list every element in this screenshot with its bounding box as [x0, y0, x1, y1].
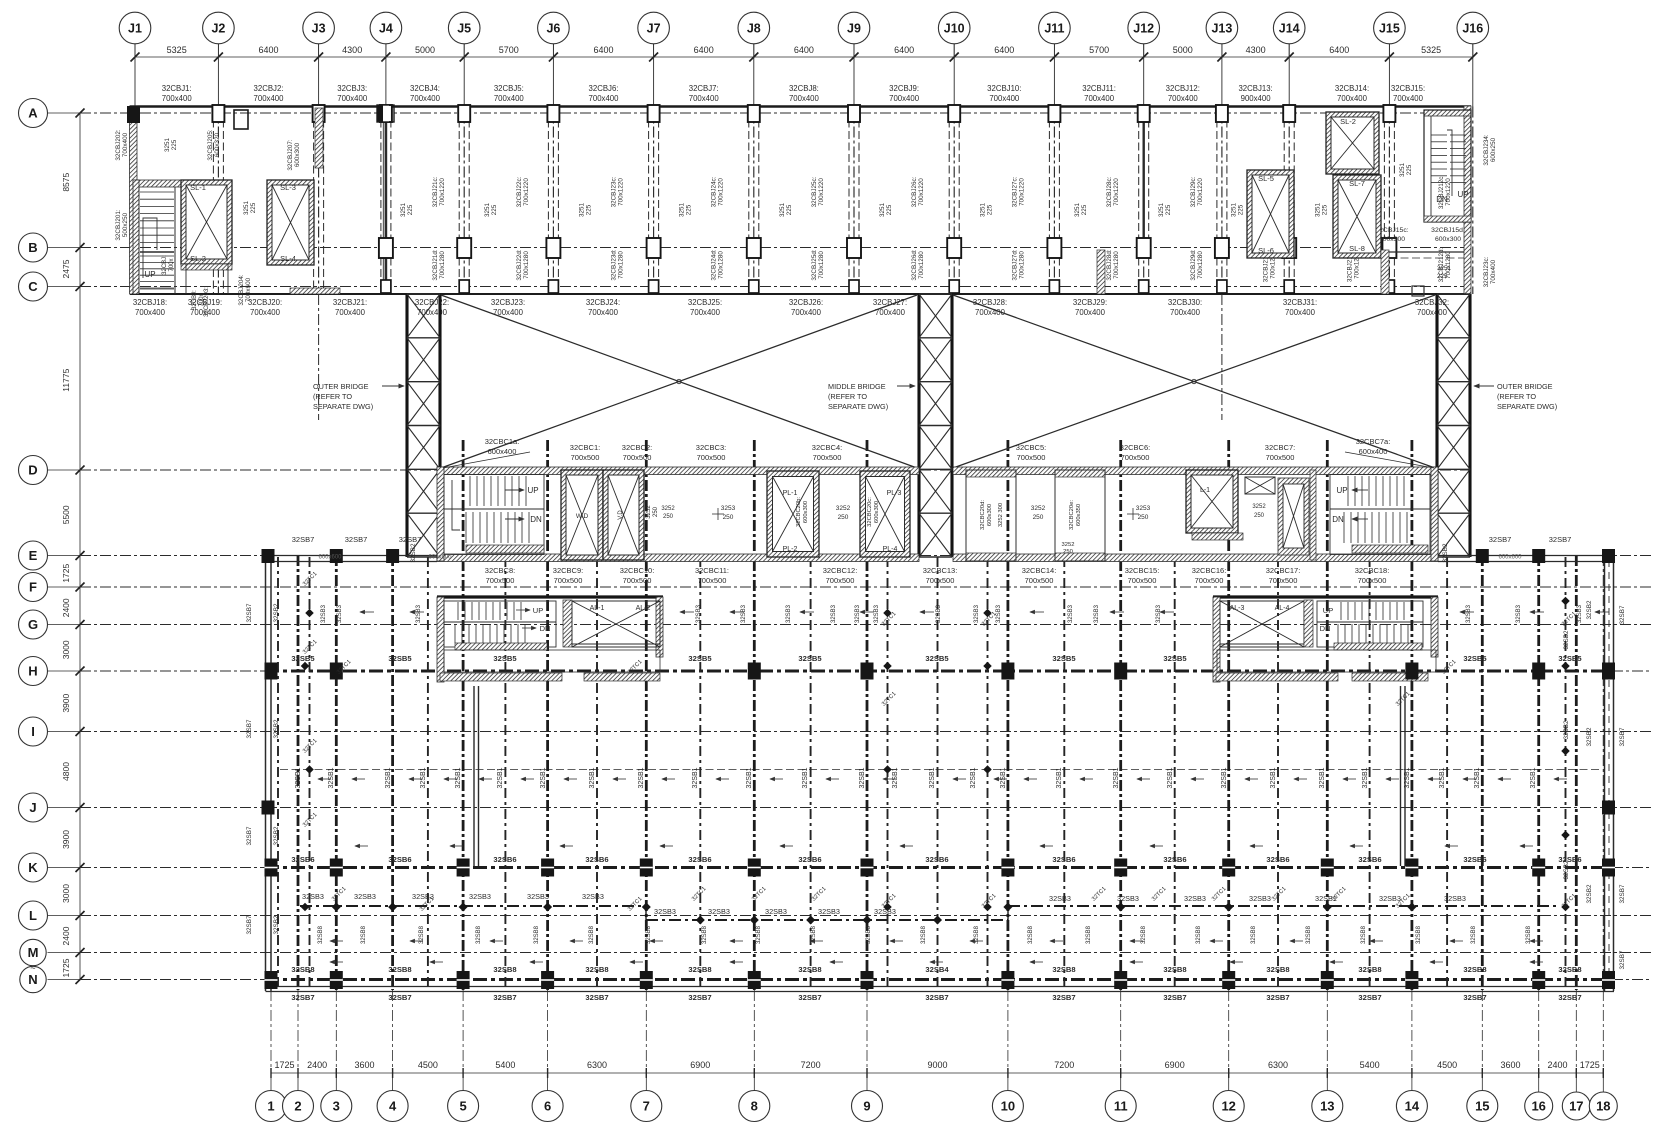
svg-text:5400: 5400	[495, 1060, 515, 1070]
svg-text:32CBJ23c:: 32CBJ23c:	[611, 176, 618, 207]
svg-text:32SB7: 32SB7	[388, 993, 411, 1002]
svg-text:700x400: 700x400	[588, 308, 619, 317]
svg-text:32SB2: 32SB2	[273, 719, 280, 738]
svg-text:32SB5: 32SB5	[1163, 654, 1187, 663]
svg-text:225: 225	[586, 204, 593, 215]
svg-text:32CBC13:: 32CBC13:	[923, 566, 958, 575]
svg-text:32CBJ28d:: 32CBJ28d:	[1106, 249, 1113, 280]
svg-text:700x1280: 700x1280	[1113, 251, 1120, 279]
svg-text:32SB8: 32SB8	[493, 965, 516, 974]
svg-text:32SB3: 32SB3	[469, 892, 491, 901]
svg-text:32CBJ26d:: 32CBJ26d:	[911, 249, 918, 280]
svg-text:17: 17	[1569, 1099, 1583, 1114]
svg-text:4500: 4500	[1437, 1060, 1457, 1070]
svg-text:32SB1: 32SB1	[385, 767, 392, 788]
svg-text:32SB6: 32SB6	[388, 855, 411, 864]
svg-text:3600: 3600	[354, 1060, 374, 1070]
svg-text:700x400: 700x400	[1084, 94, 1115, 103]
svg-text:6900: 6900	[690, 1060, 710, 1070]
svg-text:32SB1: 32SB1	[1530, 767, 1537, 788]
svg-text:5000: 5000	[415, 45, 435, 55]
svg-text:32SB7: 32SB7	[1619, 884, 1626, 903]
svg-text:10: 10	[1001, 1099, 1015, 1114]
svg-text:900x400: 900x400	[1241, 94, 1272, 103]
svg-text:700x500: 700x500	[926, 576, 955, 585]
svg-text:32CBC9:: 32CBC9:	[553, 566, 583, 575]
svg-text:3252: 3252	[1062, 542, 1075, 548]
svg-text:OUTER BRIDGE: OUTER BRIDGE	[313, 382, 369, 391]
svg-text:J6: J6	[546, 22, 560, 36]
svg-text:32CBJ23:: 32CBJ23:	[491, 298, 525, 307]
svg-text:DN: DN	[530, 515, 542, 524]
svg-text:32CBC2:: 32CBC2:	[622, 443, 652, 452]
svg-text:4300: 4300	[342, 45, 362, 55]
svg-text:~: ~	[30, 963, 35, 973]
svg-text:700x500: 700x500	[623, 576, 652, 585]
svg-text:UP: UP	[144, 270, 155, 279]
svg-text:32SB7: 32SB7	[246, 826, 253, 845]
svg-text:UP: UP	[533, 606, 543, 615]
svg-text:32CBJ18:: 32CBJ18:	[133, 298, 167, 307]
svg-text:250: 250	[723, 514, 734, 521]
svg-text:J8: J8	[747, 22, 761, 36]
svg-text:3600: 3600	[1500, 1060, 1520, 1070]
svg-text:700x1220: 700x1220	[523, 178, 530, 206]
svg-text:32SB8: 32SB8	[291, 965, 314, 974]
svg-text:J10: J10	[944, 22, 965, 36]
svg-text:32CBJ2:: 32CBJ2:	[254, 84, 284, 93]
svg-text:700x500: 700x500	[1266, 453, 1295, 462]
svg-text:9000: 9000	[927, 1060, 947, 1070]
svg-text:700x1220: 700x1220	[818, 178, 825, 206]
svg-text:700x1220: 700x1220	[1018, 178, 1025, 206]
svg-text:32SB3: 32SB3	[1516, 604, 1522, 623]
svg-text:3253: 3253	[721, 505, 736, 512]
svg-text:3252: 3252	[1031, 505, 1046, 512]
svg-text:4: 4	[389, 1099, 397, 1114]
svg-text:32CBJ29:: 32CBJ29:	[1073, 298, 1107, 307]
svg-text:J9: J9	[847, 22, 861, 36]
svg-text:5000: 5000	[1173, 45, 1193, 55]
svg-text:32SB3: 32SB3	[1117, 894, 1139, 903]
svg-text:250: 250	[1033, 514, 1044, 521]
svg-text:225: 225	[786, 204, 793, 215]
svg-text:600x350: 600x350	[1076, 504, 1082, 526]
svg-text:32CBJ23c:: 32CBJ23c:	[1483, 256, 1490, 287]
svg-text:OUTER BRIDGE: OUTER BRIDGE	[1497, 382, 1553, 391]
svg-text:225: 225	[171, 139, 178, 150]
svg-text:V.D: V.D	[618, 510, 624, 520]
svg-text:DN: DN	[540, 624, 551, 633]
svg-text:32SB6: 32SB6	[1052, 855, 1075, 864]
svg-text:32CBJ5:: 32CBJ5:	[494, 84, 524, 93]
svg-text:700x: 700x	[199, 293, 205, 306]
svg-text:600x300: 600x300	[1379, 236, 1405, 243]
svg-text:32SB2: 32SB2	[1586, 884, 1593, 903]
svg-text:2400: 2400	[1547, 1060, 1567, 1070]
svg-text:L-1: L-1	[1200, 487, 1210, 494]
svg-text:13: 13	[1320, 1099, 1334, 1114]
svg-text:32CBJ20:: 32CBJ20:	[248, 298, 282, 307]
svg-text:J16: J16	[1462, 22, 1483, 36]
svg-text:32CBC17:: 32CBC17:	[1266, 566, 1301, 575]
svg-text:32SB7: 32SB7	[1619, 950, 1626, 969]
svg-text:32SB8: 32SB8	[476, 925, 482, 944]
svg-text:600x400: 600x400	[488, 447, 517, 456]
svg-text:32SB2: 32SB2	[273, 826, 280, 845]
svg-text:32SB1: 32SB1	[455, 767, 462, 788]
svg-text:D: D	[28, 463, 37, 478]
svg-text:700x400: 700x400	[1170, 308, 1201, 317]
svg-text:32CBC14:: 32CBC14:	[1022, 566, 1057, 575]
svg-text:J15: J15	[1379, 22, 1400, 36]
svg-text:700x400: 700x400	[1417, 308, 1448, 317]
svg-text:225: 225	[491, 204, 498, 215]
svg-text:32CBC7:: 32CBC7:	[1265, 443, 1295, 452]
svg-text:32CBJ25:: 32CBJ25:	[688, 298, 722, 307]
svg-text:600x300: 600x300	[874, 501, 880, 523]
svg-text:J5: J5	[457, 22, 471, 36]
svg-text:32SB3: 32SB3	[1156, 604, 1162, 623]
svg-text:32SB3: 32SB3	[936, 604, 942, 623]
svg-text:32SB3: 32SB3	[1466, 604, 1472, 623]
svg-text:B: B	[28, 240, 37, 255]
svg-text:32SB3: 32SB3	[786, 604, 792, 623]
svg-text:32SB7: 32SB7	[345, 535, 368, 544]
svg-text:3900: 3900	[61, 693, 71, 712]
svg-text:32SB7: 32SB7	[291, 993, 314, 1002]
svg-text:32SB8: 32SB8	[1416, 925, 1422, 944]
svg-text:32CBC8:: 32CBC8:	[485, 566, 515, 575]
svg-text:32SB8: 32SB8	[1471, 925, 1477, 944]
svg-text:32SB8: 32SB8	[866, 925, 872, 944]
svg-text:32SB7: 32SB7	[925, 993, 948, 1002]
svg-text:250: 250	[663, 514, 674, 520]
svg-text:32CBJ27c:: 32CBJ27c:	[1011, 176, 1018, 207]
svg-text:5325: 5325	[1421, 45, 1441, 55]
svg-text:32SB1: 32SB1	[1000, 767, 1007, 788]
svg-text:32SB8: 32SB8	[1463, 965, 1486, 974]
svg-text:SL-1: SL-1	[190, 183, 206, 192]
svg-text:11: 11	[1114, 1099, 1128, 1114]
svg-text:700x400: 700x400	[875, 308, 906, 317]
svg-text:32SB3: 32SB3	[831, 604, 837, 623]
svg-text:225: 225	[407, 204, 414, 215]
svg-text:32SB3: 32SB3	[582, 892, 604, 901]
svg-text:32CBJ22c:: 32CBJ22c:	[516, 176, 523, 207]
svg-text:32SB2: 32SB2	[1586, 600, 1593, 619]
svg-text:32CBC3:: 32CBC3:	[696, 443, 726, 452]
svg-text:3251: 3251	[1314, 203, 1321, 218]
svg-text:32CBJ25c:: 32CBJ25c:	[811, 176, 818, 207]
svg-text:250: 250	[838, 514, 849, 521]
svg-text:SL-5: SL-5	[1258, 174, 1274, 183]
svg-text:7200: 7200	[801, 1060, 821, 1070]
svg-text:32SB7: 32SB7	[1619, 605, 1626, 624]
svg-text:32SB3: 32SB3	[708, 907, 730, 916]
svg-text:6400: 6400	[794, 45, 814, 55]
svg-text:J2: J2	[211, 22, 225, 36]
svg-text:32SB8: 32SB8	[318, 925, 324, 944]
svg-text:DN: DN	[1320, 624, 1331, 633]
svg-text:32SB8: 32SB8	[688, 965, 711, 974]
svg-text:32CBJ13:: 32CBJ13:	[1238, 84, 1272, 93]
svg-text:32SB7: 32SB7	[1266, 993, 1289, 1002]
svg-text:DN: DN	[1436, 195, 1448, 204]
svg-text:32SB1: 32SB1	[328, 767, 335, 788]
svg-text:32SB6: 32SB6	[1463, 855, 1486, 864]
svg-text:700x400: 700x400	[494, 94, 525, 103]
svg-text:32SB3: 32SB3	[1577, 604, 1583, 623]
svg-text:32SB7: 32SB7	[585, 993, 608, 1002]
svg-text:32CBJ28:: 32CBJ28:	[973, 298, 1007, 307]
svg-text:12: 12	[1221, 1099, 1235, 1114]
svg-text:L: L	[29, 908, 37, 923]
svg-text:J: J	[29, 800, 36, 815]
svg-text:J11: J11	[1044, 22, 1064, 36]
svg-text:32CBC18:: 32CBC18:	[1355, 566, 1390, 575]
svg-text:32CBJ8:: 32CBJ8:	[789, 84, 819, 93]
svg-text:32SB2: 32SB2	[1586, 727, 1593, 746]
svg-text:32SB7: 32SB7	[493, 993, 516, 1002]
svg-text:SEPARATE DWG): SEPARATE DWG)	[828, 402, 888, 411]
svg-text:32SB6: 32SB6	[798, 855, 821, 864]
svg-text:AL-3: AL-3	[1230, 605, 1245, 612]
svg-text:225: 225	[1238, 204, 1245, 215]
svg-text:32SB8: 32SB8	[585, 965, 608, 974]
svg-text:250: 250	[653, 506, 659, 517]
svg-text:32SB1: 32SB1	[497, 767, 504, 788]
svg-text:32SB5: 32SB5	[291, 654, 315, 663]
svg-text:32CBJ4:: 32CBJ4:	[410, 84, 440, 93]
svg-text:1725: 1725	[1580, 1060, 1600, 1070]
svg-text:32SB1: 32SB1	[1113, 767, 1120, 788]
svg-text:8: 8	[751, 1099, 758, 1114]
svg-text:700x400: 700x400	[791, 308, 822, 317]
svg-text:32SB6: 32SB6	[688, 855, 711, 864]
svg-text:600x600: 600x600	[318, 555, 342, 561]
svg-text:32SB5: 32SB5	[1558, 654, 1582, 663]
svg-text:500x250: 500x250	[122, 212, 129, 237]
svg-text:32CBJ29c:: 32CBJ29c:	[1190, 176, 1197, 207]
svg-text:700x400: 700x400	[689, 94, 720, 103]
svg-text:3252: 3252	[1252, 504, 1266, 510]
svg-text:32CBJ14:: 32CBJ14:	[1335, 84, 1369, 93]
svg-text:32SB8: 32SB8	[1558, 965, 1581, 974]
svg-text:32CBJ10:: 32CBJ10:	[987, 84, 1021, 93]
svg-text:15: 15	[1475, 1099, 1489, 1114]
svg-text:225: 225	[1165, 204, 1172, 215]
svg-text:32CBJ:: 32CBJ:	[192, 290, 198, 310]
svg-text:AL-1: AL-1	[590, 605, 605, 612]
svg-text:32SB7: 32SB7	[246, 719, 253, 738]
svg-text:32SB6: 32SB6	[585, 855, 608, 864]
svg-text:32SB8: 32SB8	[1306, 925, 1312, 944]
svg-text:700x500: 700x500	[486, 576, 515, 585]
svg-text:600x600: 600x600	[428, 555, 452, 561]
svg-text:1725: 1725	[61, 563, 71, 582]
svg-text:32SB3: 32SB3	[996, 604, 1002, 623]
svg-text:32SB8: 32SB8	[756, 925, 762, 944]
svg-text:32SB1: 32SB1	[746, 767, 753, 788]
svg-text:32SB5: 32SB5	[688, 654, 712, 663]
svg-text:32SB1: 32SB1	[692, 767, 699, 788]
svg-text:32SB1: 32SB1	[1362, 767, 1369, 788]
svg-text:32CBC16:: 32CBC16:	[1192, 566, 1227, 575]
svg-text:700x500: 700x500	[1358, 576, 1387, 585]
svg-text:225: 225	[886, 204, 893, 215]
svg-text:250: 250	[1254, 513, 1265, 519]
svg-text:700x1280: 700x1280	[1018, 251, 1025, 279]
svg-text:700x400: 700x400	[1393, 94, 1424, 103]
svg-text:5325: 5325	[167, 45, 187, 55]
svg-text:16: 16	[1531, 1099, 1545, 1114]
svg-text:32CBJ12:: 32CBJ12:	[1166, 84, 1200, 93]
svg-text:225: 225	[1406, 164, 1413, 175]
svg-text:1725: 1725	[274, 1060, 294, 1070]
svg-text:3252: 3252	[836, 505, 851, 512]
svg-text:32SB2: 32SB2	[1563, 860, 1570, 879]
svg-text:2475: 2475	[61, 259, 71, 278]
svg-text:AL-4: AL-4	[1275, 605, 1290, 612]
svg-text:32SB8: 32SB8	[1361, 925, 1367, 944]
svg-text:32SB7: 32SB7	[1463, 993, 1486, 1002]
svg-text:6400: 6400	[1329, 45, 1349, 55]
svg-text:32SB3: 32SB3	[741, 604, 747, 623]
svg-text:700x400: 700x400	[1490, 259, 1497, 284]
svg-text:3252 300: 3252 300	[998, 503, 1004, 527]
svg-text:SL-2: SL-2	[190, 254, 206, 263]
svg-text:4500: 4500	[418, 1060, 438, 1070]
svg-text:32CBC6:: 32CBC6:	[1120, 443, 1150, 452]
svg-text:32SB1: 32SB1	[1404, 767, 1411, 788]
svg-text:N: N	[28, 972, 37, 987]
svg-text:32SB1: 32SB1	[589, 767, 596, 788]
svg-text:32SB1: 32SB1	[1056, 767, 1063, 788]
svg-text:32SB1: 32SB1	[1474, 767, 1481, 788]
svg-text:700x1280: 700x1280	[523, 251, 530, 279]
svg-text:700x500: 700x500	[571, 453, 600, 462]
svg-text:(REFER TO: (REFER TO	[313, 392, 352, 401]
svg-text:3251: 3251	[1399, 163, 1406, 178]
svg-text:700x1220: 700x1220	[718, 178, 725, 206]
svg-text:600x300: 600x300	[294, 142, 301, 167]
svg-text:SL-8: SL-8	[1349, 244, 1365, 253]
svg-text:3900: 3900	[61, 830, 71, 849]
svg-text:(REFER TO: (REFER TO	[828, 392, 867, 401]
svg-text:8575: 8575	[61, 172, 71, 191]
svg-text:1: 1	[267, 1099, 274, 1114]
svg-text:32CBJ1:: 32CBJ1:	[162, 84, 192, 93]
svg-text:UP: UP	[1336, 486, 1347, 495]
svg-text:600x300: 600x300	[1435, 236, 1461, 243]
svg-text:700x400: 700x400	[254, 94, 285, 103]
svg-text:7200: 7200	[1054, 1060, 1074, 1070]
svg-text:2400: 2400	[61, 926, 71, 945]
svg-text:700x400: 700x400	[690, 308, 721, 317]
svg-text:32CBJ11:: 32CBJ11:	[1082, 84, 1116, 93]
svg-text:32SB3: 32SB3	[974, 604, 980, 623]
svg-text:6400: 6400	[994, 45, 1014, 55]
svg-text:PL-1: PL-1	[783, 490, 798, 497]
svg-text:250: 250	[1138, 514, 1149, 521]
svg-text:32SB1: 32SB1	[1319, 767, 1326, 788]
svg-text:32CBC12:: 32CBC12:	[823, 566, 858, 575]
svg-text:225: 225	[250, 202, 257, 213]
svg-text:32CBJ202:: 32CBJ202:	[115, 129, 122, 160]
svg-text:700x500: 700x500	[623, 453, 652, 462]
svg-text:32SB3: 32SB3	[654, 907, 676, 916]
svg-text:3251: 3251	[779, 203, 786, 218]
svg-text:32CBJ27:: 32CBJ27:	[873, 298, 907, 307]
svg-text:SEPARATE DWG): SEPARATE DWG)	[313, 402, 373, 411]
svg-text:32CBJ205:: 32CBJ205:	[207, 129, 214, 160]
svg-text:C: C	[28, 279, 38, 294]
svg-text:700x1220: 700x1220	[1197, 178, 1204, 206]
svg-text:I: I	[31, 724, 35, 739]
svg-text:32CBC1a:: 32CBC1a:	[485, 437, 520, 446]
svg-text:700x1280: 700x1280	[618, 251, 625, 279]
svg-text:W.D: W.D	[576, 513, 589, 520]
svg-text:32SB6: 32SB6	[291, 855, 314, 864]
svg-text:32SB8: 32SB8	[1086, 925, 1092, 944]
svg-text:32SB6: 32SB6	[1358, 855, 1381, 864]
svg-text:32SB1: 32SB1	[929, 767, 936, 788]
svg-text:700x600: 700x600	[245, 277, 252, 302]
svg-text:PL-4: PL-4	[883, 546, 898, 553]
svg-text:32CBJ24c:: 32CBJ24c:	[711, 176, 718, 207]
svg-text:700x400: 700x400	[250, 308, 281, 317]
svg-text:6400: 6400	[894, 45, 914, 55]
svg-text:32SB1: 32SB1	[295, 767, 302, 788]
svg-text:32CBC7a:: 32CBC7a:	[1356, 437, 1391, 446]
svg-text:700x400: 700x400	[1337, 94, 1368, 103]
svg-text:DN: DN	[1332, 515, 1344, 524]
svg-text:32CBJ21c:: 32CBJ21c:	[432, 176, 439, 207]
svg-text:250: 250	[1063, 549, 1073, 555]
svg-text:700x400: 700x400	[1285, 308, 1316, 317]
svg-text:32CBJ9:: 32CBJ9:	[889, 84, 919, 93]
svg-text:4300: 4300	[1246, 45, 1266, 55]
svg-text:32SB1: 32SB1	[802, 767, 809, 788]
svg-text:F: F	[29, 580, 37, 595]
svg-text:SEPARATE DWG): SEPARATE DWG)	[1497, 402, 1557, 411]
svg-text:32CBJ22:: 32CBJ22:	[415, 298, 449, 307]
svg-text:3251: 3251	[484, 203, 491, 218]
svg-text:2400: 2400	[307, 1060, 327, 1070]
svg-text:700x1220: 700x1220	[918, 178, 925, 206]
svg-text:5500: 5500	[61, 505, 71, 524]
svg-text:14: 14	[1405, 1099, 1420, 1114]
svg-text:E: E	[29, 548, 38, 563]
svg-text:32SB3: 32SB3	[1068, 604, 1074, 623]
svg-text:32CBJ21d:: 32CBJ21d:	[432, 249, 439, 280]
svg-text:11775: 11775	[61, 368, 71, 391]
svg-text:J3: J3	[312, 22, 326, 36]
svg-text:3000: 3000	[61, 884, 71, 903]
svg-text:32SB1: 32SB1	[540, 767, 547, 788]
svg-text:32SB3: 32SB3	[1444, 894, 1466, 903]
svg-text:6400: 6400	[593, 45, 613, 55]
svg-text:32SB5: 32SB5	[925, 654, 949, 663]
svg-text:32SB1: 32SB1	[638, 767, 645, 788]
svg-text:32SB7: 32SB7	[1619, 727, 1626, 746]
svg-text:UP: UP	[1323, 606, 1333, 615]
svg-text:225: 225	[686, 204, 693, 215]
svg-text:32SB7: 32SB7	[246, 915, 253, 934]
svg-text:32SB3: 32SB3	[855, 604, 861, 623]
svg-text:32SB2: 32SB2	[273, 603, 280, 622]
